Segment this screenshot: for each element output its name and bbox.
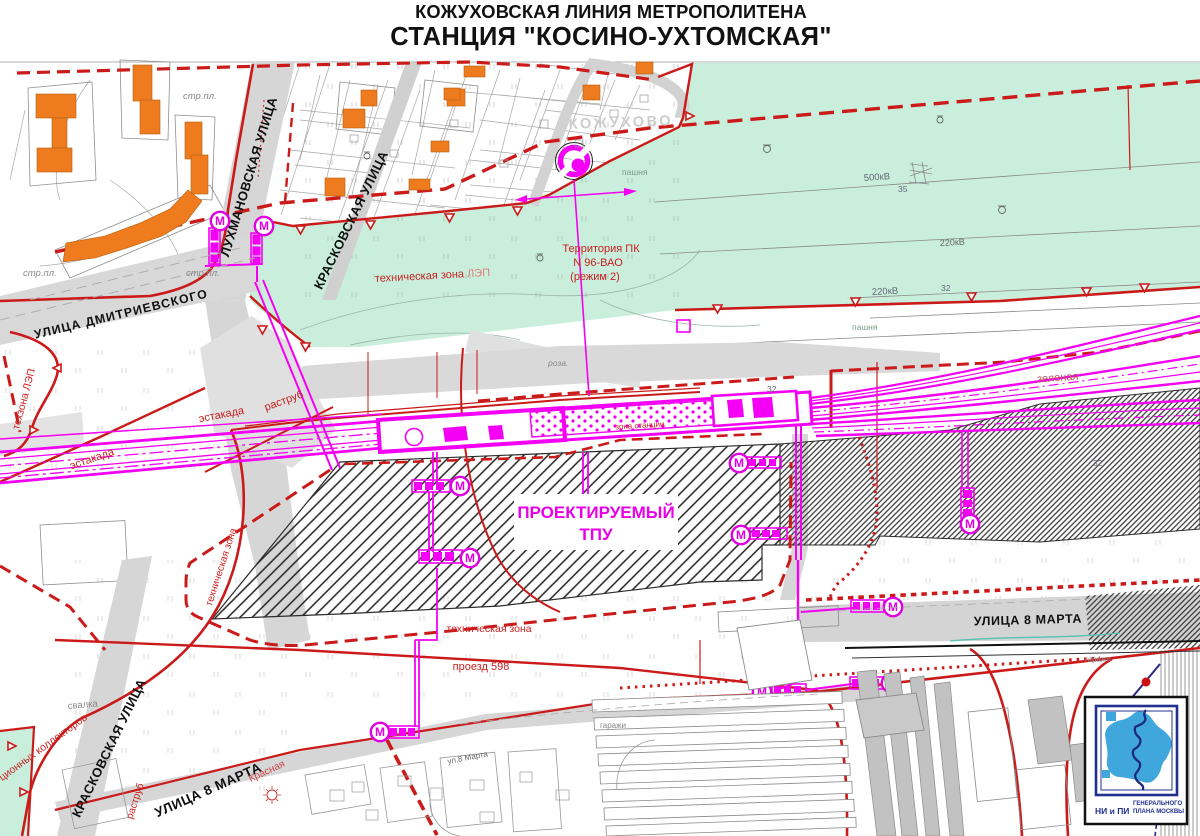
svg-text:М: М bbox=[965, 517, 975, 531]
svg-text:ПЛАНА МОСКВЫ: ПЛАНА МОСКВЫ bbox=[1133, 809, 1184, 815]
svg-text:ГЕНЕРАЛЬНОГО: ГЕНЕРАЛЬНОГО bbox=[1133, 801, 1182, 807]
svg-text:стр.пл.: стр.пл. bbox=[186, 268, 220, 279]
svg-text:НИ и ПИ: НИ и ПИ bbox=[1095, 806, 1129, 816]
svg-text:проезд 598: проезд 598 bbox=[453, 661, 510, 673]
svg-text:КОЖУХОВСКАЯ ЛИНИЯ МЕТРОПОЛИТЕН: КОЖУХОВСКАЯ ЛИНИЯ МЕТРОПОЛИТЕНА bbox=[415, 1, 807, 22]
svg-text:М: М bbox=[465, 551, 475, 565]
svg-text:техническая зона: техническая зона bbox=[446, 623, 531, 635]
svg-text:М: М bbox=[215, 214, 225, 228]
svg-text:ТПУ: ТПУ bbox=[579, 525, 613, 544]
svg-text:М: М bbox=[455, 479, 465, 493]
svg-text:220кВ: 220кВ bbox=[940, 237, 965, 248]
svg-text:М: М bbox=[888, 600, 898, 614]
svg-text:УЛИЦА 8 МАРТА: УЛИЦА 8 МАРТА bbox=[974, 612, 1083, 629]
svg-text:500кВ: 500кВ bbox=[863, 171, 890, 184]
svg-text:35: 35 bbox=[898, 184, 908, 194]
svg-text:М: М bbox=[734, 456, 744, 470]
svg-text:ПРОЕКТИРУЕМЫЙ: ПРОЕКТИРУЕМЫЙ bbox=[517, 503, 674, 522]
svg-text:М: М bbox=[375, 725, 385, 739]
svg-text:220кВ: 220кВ bbox=[872, 286, 899, 298]
svg-text:пашня: пашня bbox=[852, 322, 878, 332]
svg-text:стр.пл.: стр.пл. bbox=[23, 268, 57, 279]
svg-text:СТАНЦИЯ "КОСИНО-УХТОМСКАЯ": СТАНЦИЯ "КОСИНО-УХТОМСКАЯ" bbox=[390, 23, 831, 51]
svg-text:роза.: роза. bbox=[547, 358, 568, 368]
svg-text:N 96-ВАО: N 96-ВАО bbox=[573, 257, 623, 269]
svg-text:Территория ПК: Территория ПК bbox=[562, 243, 640, 255]
svg-text:гаражи: гаражи bbox=[600, 721, 626, 730]
svg-text:(режим 2): (режим 2) bbox=[570, 271, 620, 283]
svg-text:гаражи: гаражи bbox=[1085, 654, 1111, 664]
svg-text:М: М bbox=[259, 219, 269, 233]
svg-text:32: 32 bbox=[941, 283, 951, 293]
svg-text:32: 32 bbox=[767, 384, 777, 394]
svg-text:М: М bbox=[736, 528, 746, 542]
svg-text:стр.пл.: стр.пл. bbox=[183, 91, 217, 102]
svg-text:32: 32 bbox=[1093, 458, 1103, 468]
svg-text:пашня: пашня bbox=[622, 167, 648, 177]
